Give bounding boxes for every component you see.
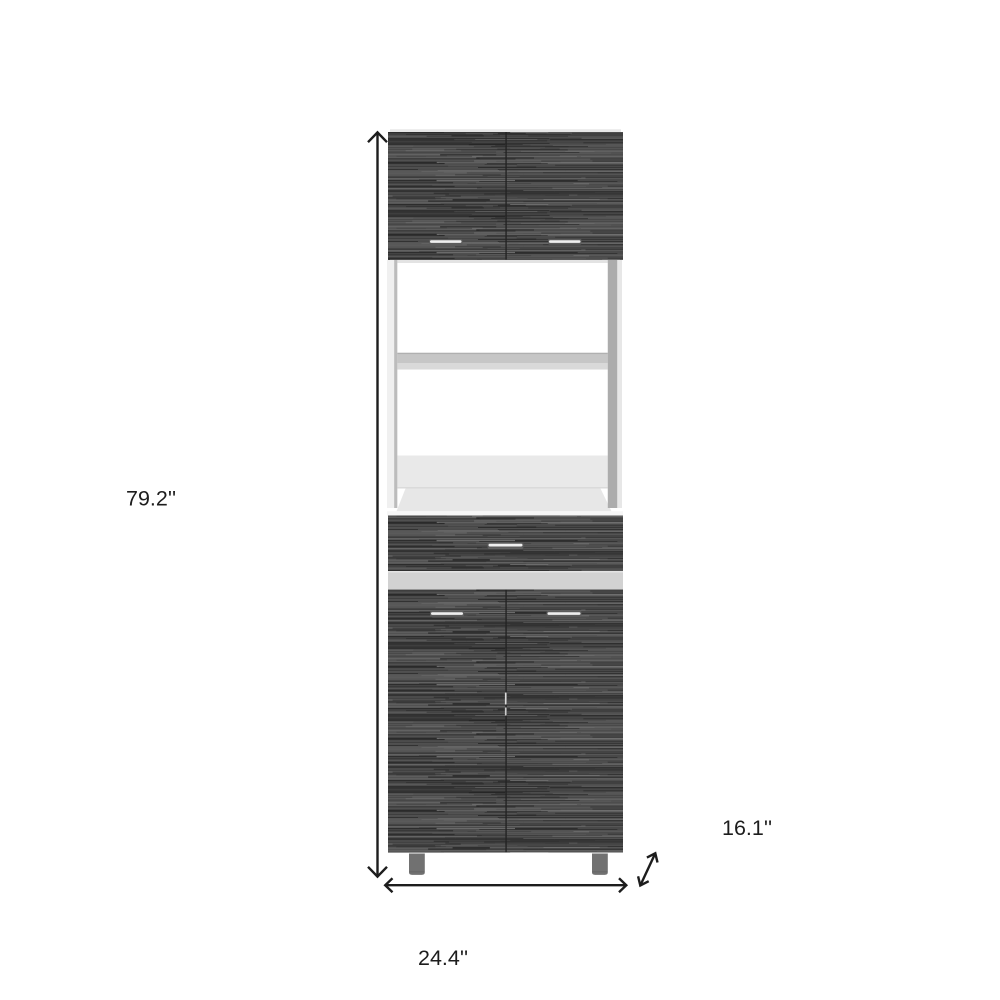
svg-text:16.1'': 16.1'' [722, 816, 772, 840]
svg-text:79.2'': 79.2'' [126, 487, 176, 511]
svg-text:24.4'': 24.4'' [418, 946, 468, 970]
